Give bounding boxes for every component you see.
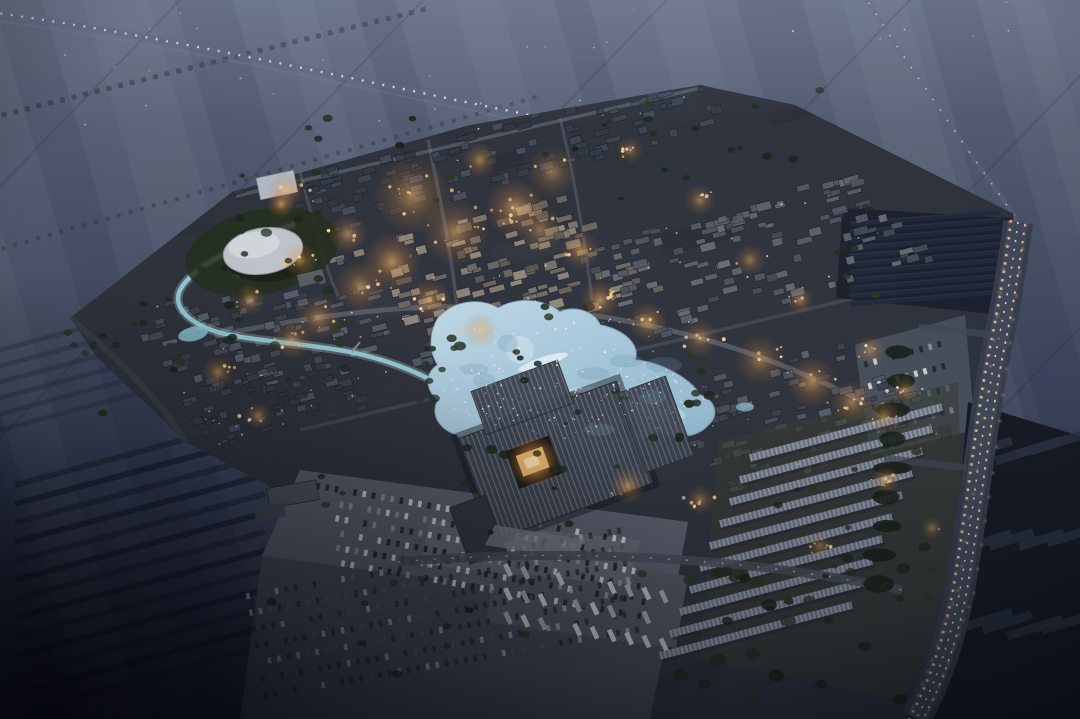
aerial-rendering-stage xyxy=(0,0,1080,719)
aerial-night-town-rendering xyxy=(0,0,1080,719)
top-haze xyxy=(0,0,1080,719)
